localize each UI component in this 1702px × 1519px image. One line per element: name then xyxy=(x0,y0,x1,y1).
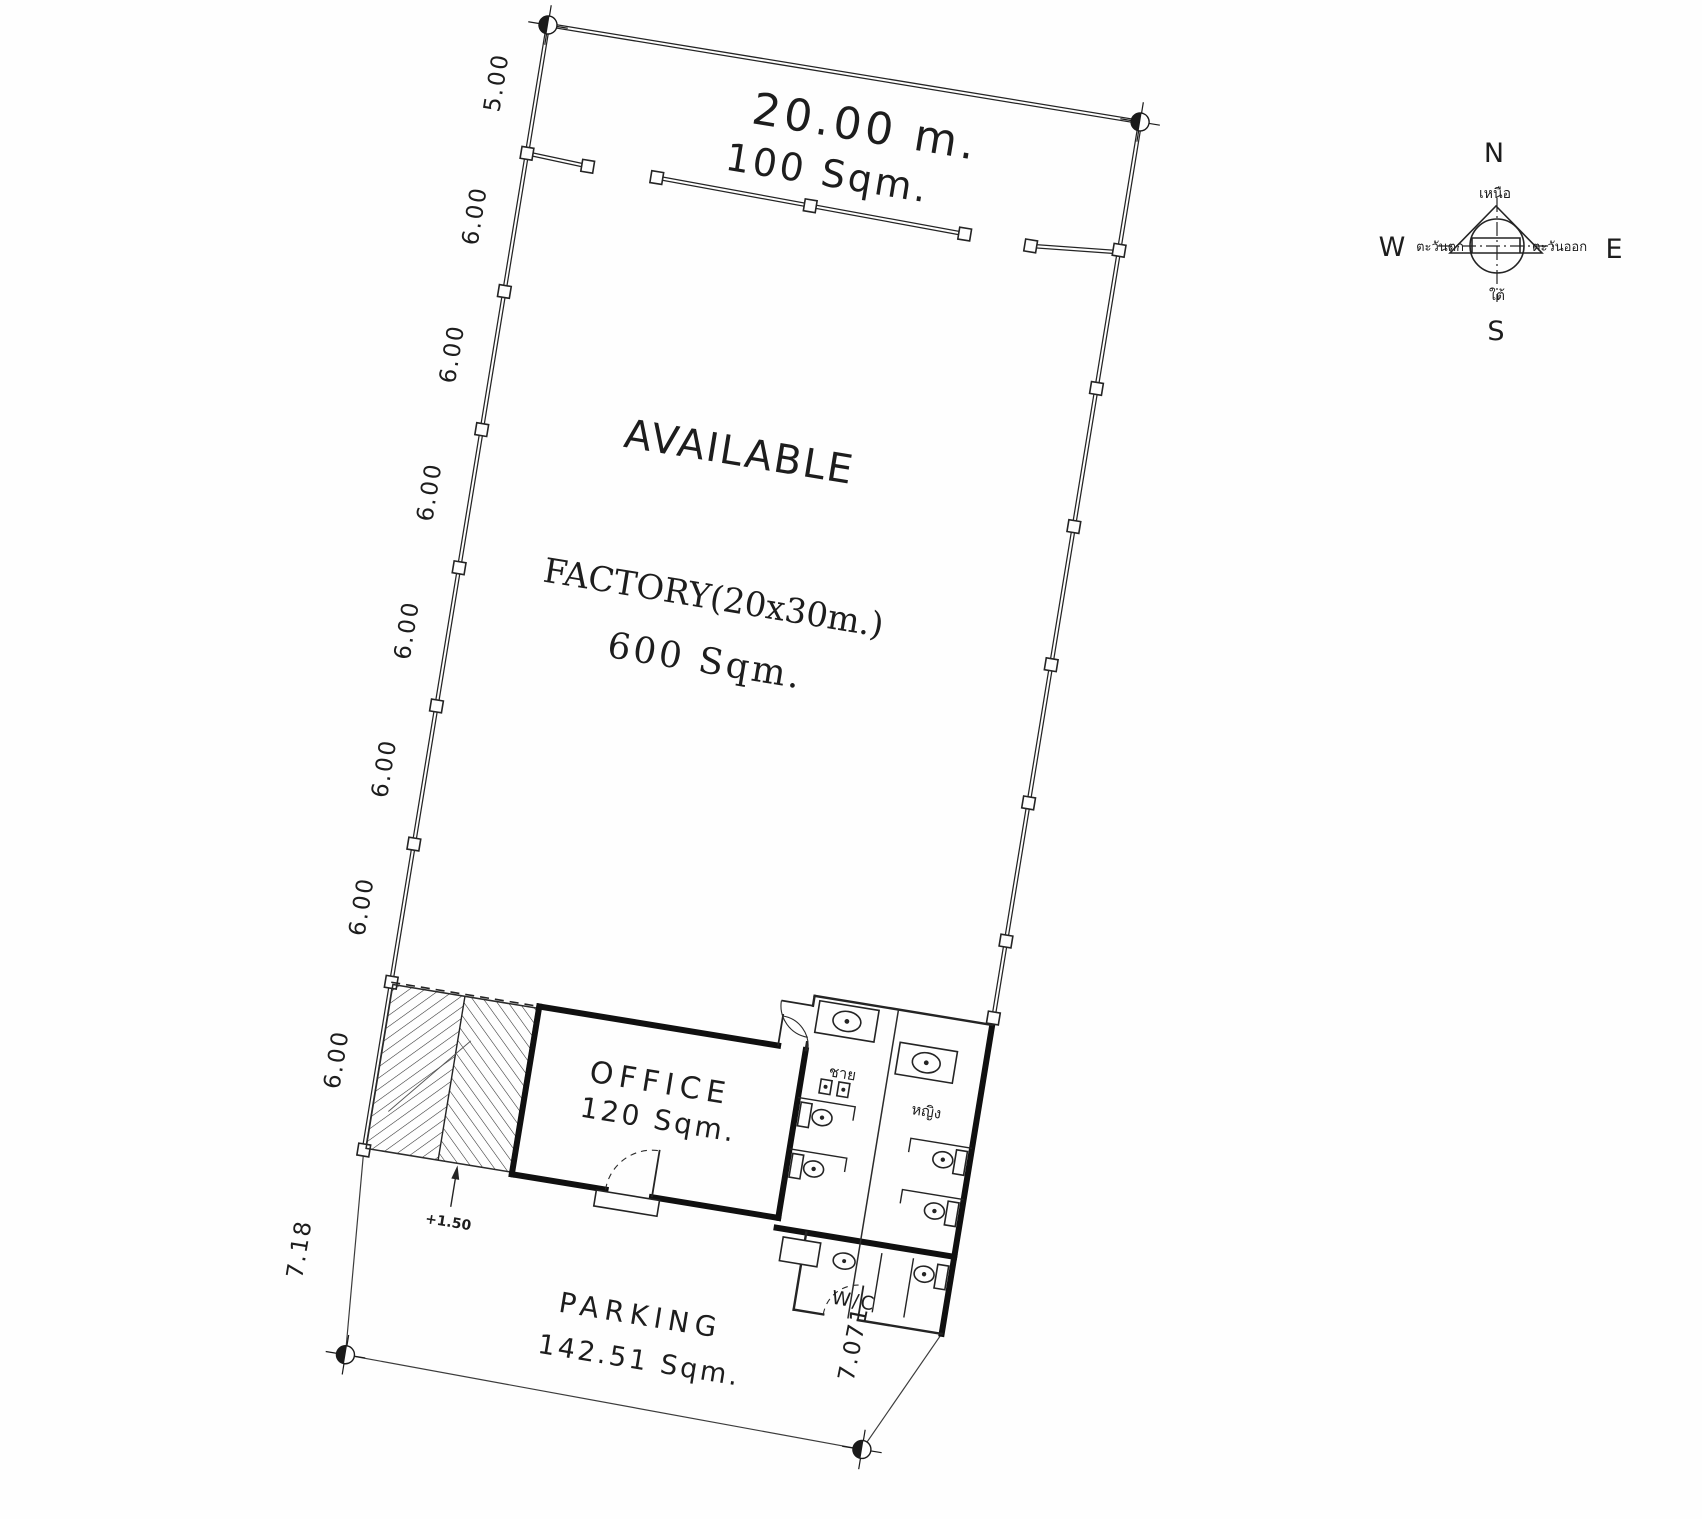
womens-toilet xyxy=(931,1146,967,1175)
mens-toilet xyxy=(797,1102,833,1131)
compass-east-thai-label: ตะวันออก xyxy=(1532,240,1587,255)
mens-toilet xyxy=(789,1153,825,1182)
wc-toilet xyxy=(912,1261,948,1290)
survey-markers xyxy=(306,2,1163,1482)
toilet-corridor-wall xyxy=(848,1010,899,1319)
factory-name-label: FACTORY(20x30m.) xyxy=(541,551,887,646)
dim-west-6m-3: 6.00 xyxy=(412,461,447,524)
dim-west-parking: 7.18 xyxy=(282,1218,317,1281)
dim-west-6m-7: 6.00 xyxy=(319,1028,354,1091)
dim-west-6m-6: 6.00 xyxy=(344,875,379,938)
compass-rose: N เหนือ W ตะวันตก ตะวันออก E ใต้ S xyxy=(1379,138,1623,347)
wc-cabinet xyxy=(779,1237,820,1267)
dim-west-6m-2: 6.00 xyxy=(435,323,470,386)
site-plan-group: +1.50 xyxy=(267,0,1163,1482)
compass-south-label: S xyxy=(1487,316,1504,347)
dim-west-5m: 5.00 xyxy=(479,51,514,114)
mens-room-door xyxy=(781,1001,813,1006)
womens-room-label: หญิง xyxy=(910,1100,943,1123)
office-entry-door xyxy=(652,1150,660,1197)
office-toilet-door xyxy=(778,1014,783,1046)
compass-east-label: E xyxy=(1605,234,1622,265)
dim-west-6m-1: 6.00 xyxy=(458,184,493,247)
womens-toilet xyxy=(923,1198,959,1227)
dim-west-6m-5: 6.00 xyxy=(367,737,402,800)
factory-area-label: 600 Sqm. xyxy=(605,625,806,697)
compass-south-thai-label: ใต้ xyxy=(1489,287,1505,304)
ramp-level-label: +1.50 xyxy=(424,1211,473,1234)
available-label: AVAILABLE xyxy=(621,411,858,494)
compass-north-label: N xyxy=(1484,138,1504,169)
floor-plan-page: +1.50 xyxy=(0,0,1702,1519)
dim-west-6m-4: 6.00 xyxy=(390,599,425,662)
compass-north-thai-label: เหนือ xyxy=(1479,186,1511,202)
compass-west-label: W xyxy=(1379,232,1406,263)
compass-west-thai-label: ตะวันตก xyxy=(1416,240,1464,255)
floor-plan-drawing: +1.50 xyxy=(0,0,1702,1519)
dim-east-parking: 7.071 xyxy=(834,1304,874,1383)
